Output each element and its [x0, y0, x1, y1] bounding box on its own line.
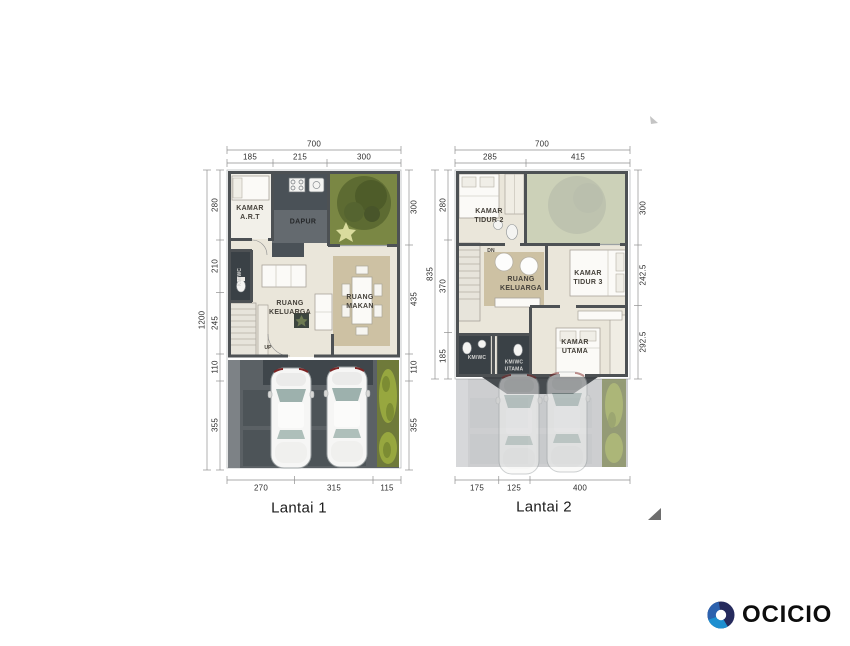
floorplan-sheet: 700 185 215 300 1200 280 210 245 110 355…	[0, 0, 850, 646]
dim-l2-left-0: 280	[439, 198, 448, 212]
floorplan-graphics	[0, 0, 850, 646]
room-label-kmwc-utama: KM/WC UTAMA	[505, 360, 524, 373]
ghost-car-1	[496, 374, 542, 474]
dim-l1-left-3: 110	[211, 360, 220, 373]
dim-l1-left-0: 280	[211, 198, 220, 212]
ocicio-logo: OCICIO	[707, 601, 832, 629]
cursor-artifact-top	[650, 116, 658, 124]
dim-l1-left-1: 210	[211, 259, 220, 273]
dim-l2-total-height: 835	[426, 267, 435, 281]
dim-l2-total-width: 700	[535, 140, 549, 149]
dim-l2-top-0: 285	[483, 153, 497, 162]
room-label-kamar-art: KAMAR A.R.T	[236, 204, 264, 222]
dim-l2-left-1: 370	[439, 279, 448, 293]
floor-title-lantai-1: Lantai 1	[271, 500, 327, 517]
dim-l1-right-2: 110	[410, 360, 419, 373]
stairs-up	[230, 303, 256, 356]
dim-l2-right-1: 242.5	[639, 264, 648, 285]
room-label-kmwc-l1: KM/WC	[237, 268, 244, 287]
floorplan-lantai-2	[431, 146, 642, 484]
dim-l2-bottom-2: 400	[573, 484, 587, 493]
room-label-kamar-tidur-2: KAMAR TIDUR 2	[474, 207, 503, 225]
dim-l1-right-1: 435	[410, 292, 419, 306]
dim-l1-bottom-0: 270	[254, 484, 268, 493]
dim-l1-right-0: 300	[410, 200, 419, 214]
dim-l2-bottom-0: 175	[470, 484, 484, 493]
dim-l1-bottom-2: 115	[380, 484, 393, 493]
stairs-down	[458, 243, 480, 321]
dim-l1-left-2: 245	[211, 316, 220, 330]
ocicio-logo-text: OCICIO	[742, 603, 832, 627]
room-label-kmwc-l2: KM/WC	[468, 355, 487, 362]
dim-l1-top-1: 215	[293, 153, 307, 162]
car-1	[268, 368, 314, 468]
hedge	[377, 360, 399, 467]
dim-l1-right-3: 355	[410, 418, 419, 432]
room-label-ruang-makan: RUANG MAKAN	[346, 293, 374, 311]
ghost-car-2	[544, 372, 590, 472]
dim-l1-bottom-1: 315	[327, 484, 341, 493]
ocicio-logo-icon	[707, 601, 735, 629]
room-label-ruang-keluarga-l2: RUANG KELUARGA	[500, 275, 542, 293]
dim-l1-total-width: 700	[307, 140, 321, 149]
room-label-kamar-utama: KAMAR UTAMA	[561, 338, 589, 356]
dim-l2-right-2: 292.5	[639, 331, 648, 352]
stair-label-dn: DN	[487, 248, 495, 255]
dim-l2-right-0: 300	[639, 201, 648, 215]
cursor-artifact-bottom	[648, 508, 661, 520]
dim-l2-bottom-1: 125	[507, 484, 521, 493]
dim-l1-left-4: 355	[211, 418, 220, 432]
carport	[228, 360, 399, 468]
dim-l2-left-2: 185	[439, 349, 448, 363]
garden	[328, 173, 399, 245]
room-label-kamar-tidur-3: KAMAR TIDUR 3	[573, 269, 602, 287]
stair-label-up: UP	[264, 345, 271, 352]
void-garden	[526, 173, 627, 245]
floor-title-lantai-2: Lantai 2	[516, 499, 572, 516]
room-label-dapur: DAPUR	[290, 217, 316, 226]
ghost-hedge	[602, 379, 626, 467]
dim-l2-top-1: 415	[571, 153, 585, 162]
car-2	[324, 367, 370, 467]
dim-l1-top-2: 300	[357, 153, 371, 162]
dim-l1-total-height: 1200	[198, 311, 207, 330]
dim-l1-top-0: 185	[243, 153, 257, 162]
room-label-ruang-keluarga-l1: RUANG KELUARGA	[269, 299, 311, 317]
